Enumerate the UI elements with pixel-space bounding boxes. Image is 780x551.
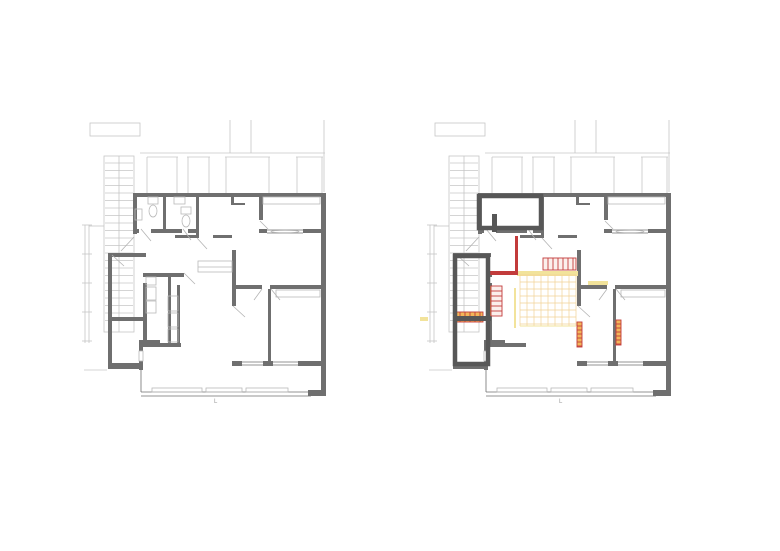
- wall-segment: [643, 361, 666, 366]
- wall-segment: [604, 229, 612, 233]
- wall-segment: [133, 229, 139, 233]
- wall-segment: [270, 285, 321, 289]
- section-mark-left: L: [214, 399, 217, 405]
- wall-segment: [487, 271, 518, 275]
- wall-segment: [151, 229, 182, 233]
- wall-segment: [648, 229, 666, 233]
- wall-segment: [231, 203, 245, 205]
- wall-segment: [576, 197, 579, 204]
- wall-segment: [259, 196, 263, 220]
- wall-segment: [231, 197, 234, 204]
- wall-segment: [139, 340, 160, 344]
- wall-segment: [259, 229, 267, 233]
- wall-segment: [232, 250, 236, 306]
- wall-segment: [666, 193, 671, 396]
- wall-segment: [143, 273, 184, 277]
- wall-segment: [492, 214, 497, 232]
- wall-segment: [558, 235, 577, 238]
- wall-segment: [615, 285, 666, 289]
- section-mark-right: L: [559, 399, 562, 405]
- floor-plans-svg: [0, 0, 780, 551]
- wall-segment: [581, 285, 607, 289]
- wall-segment: [108, 253, 112, 368]
- wall-segment: [268, 289, 271, 364]
- wall-segment: [133, 193, 325, 197]
- wall-segment: [577, 250, 581, 306]
- wall-segment: [110, 317, 146, 321]
- wall-segment: [608, 361, 618, 366]
- wall-segment: [298, 361, 321, 366]
- wall-segment: [453, 316, 491, 321]
- floor-plan-sheet: L L: [0, 0, 780, 551]
- wall-segment: [653, 390, 670, 396]
- wall-segment: [308, 390, 325, 396]
- wall-segment: [236, 285, 262, 289]
- wall-segment: [303, 229, 321, 233]
- wall-segment: [577, 361, 587, 366]
- wall-segment: [515, 236, 518, 273]
- wall-segment: [213, 235, 232, 238]
- wall-segment: [321, 193, 326, 396]
- wall-segment: [108, 363, 140, 369]
- wall-segment: [613, 289, 616, 364]
- wall-segment: [588, 281, 608, 285]
- wall-segment: [139, 351, 143, 361]
- wall-segment: [576, 203, 590, 205]
- wall-segment: [196, 196, 199, 238]
- wall-segment: [163, 196, 166, 229]
- wall-segment: [232, 361, 242, 366]
- wall-segment: [263, 361, 273, 366]
- wall-segment: [420, 317, 428, 321]
- wall-segment: [520, 235, 541, 238]
- wall-segment: [604, 196, 608, 220]
- wall-segment: [177, 285, 180, 343]
- wall-segment: [175, 235, 196, 238]
- wall-segment: [514, 288, 516, 328]
